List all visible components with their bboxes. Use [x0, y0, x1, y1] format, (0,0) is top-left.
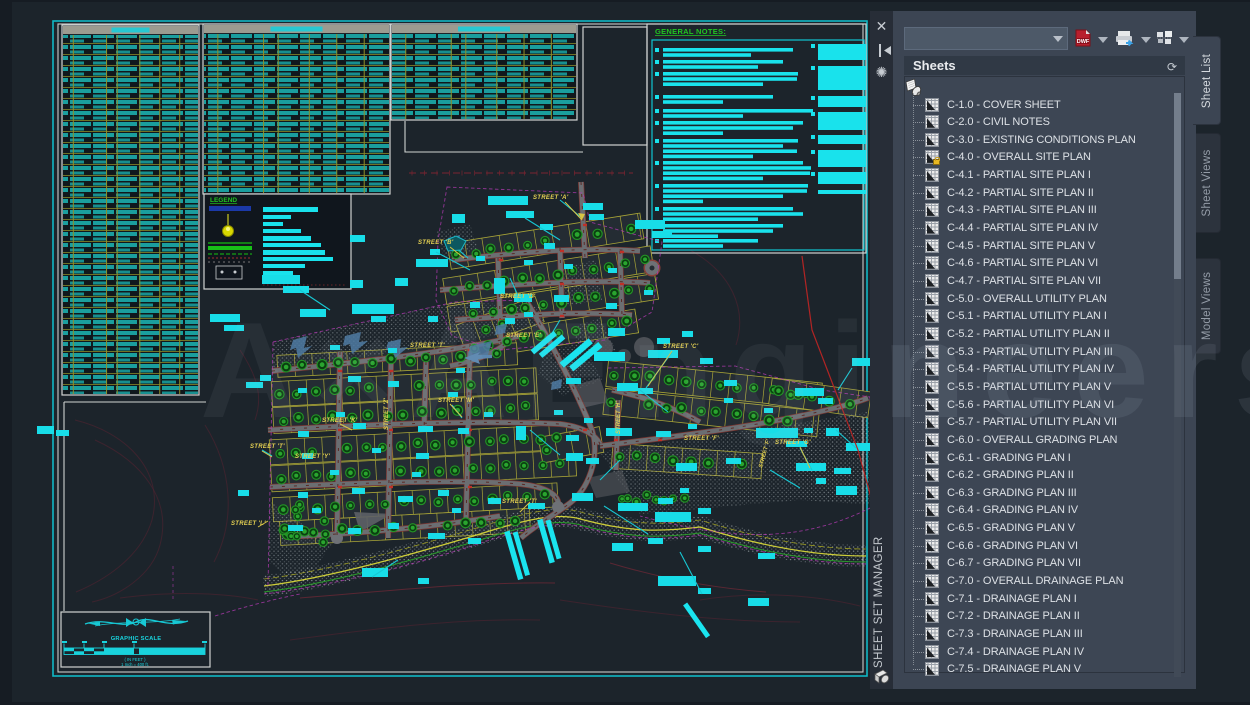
- svg-text:DWF: DWF: [1077, 39, 1090, 45]
- svg-text:STREET 'Z': STREET 'Z': [384, 398, 390, 430]
- svg-text:STREET 'T': STREET 'T': [250, 444, 285, 450]
- svg-text:STREET 'G': STREET 'G': [775, 440, 811, 446]
- svg-text:STREET 'Y': STREET 'Y': [295, 454, 330, 460]
- svg-text:1 Inch = 400 ft.: 1 Inch = 400 ft.: [121, 662, 149, 667]
- svg-text:STREET 'T': STREET 'T': [410, 343, 445, 349]
- svg-text:STREET 'A': STREET 'A': [533, 195, 569, 201]
- svg-text:STREET 'E': STREET 'E': [506, 333, 541, 339]
- svg-text:LEGEND: LEGEND: [210, 197, 237, 204]
- svg-text:STREET 'D': STREET 'D': [500, 294, 536, 300]
- svg-text:STREET 'T': STREET 'T': [502, 499, 537, 505]
- svg-text:STREET 'M': STREET 'M': [438, 398, 474, 404]
- svg-text:STREET 'F': STREET 'F': [684, 436, 719, 442]
- svg-text:STREET 'H': STREET 'H': [616, 401, 622, 434]
- svg-text:STREET 'L': STREET 'L': [231, 521, 266, 527]
- svg-text:STREET 'C': STREET 'C': [663, 344, 699, 350]
- svg-text:STREET 'K': STREET 'K': [322, 418, 358, 424]
- svg-text:GENERAL NOTES:: GENERAL NOTES:: [655, 27, 726, 36]
- svg-text:STREET 'B': STREET 'B': [418, 240, 454, 246]
